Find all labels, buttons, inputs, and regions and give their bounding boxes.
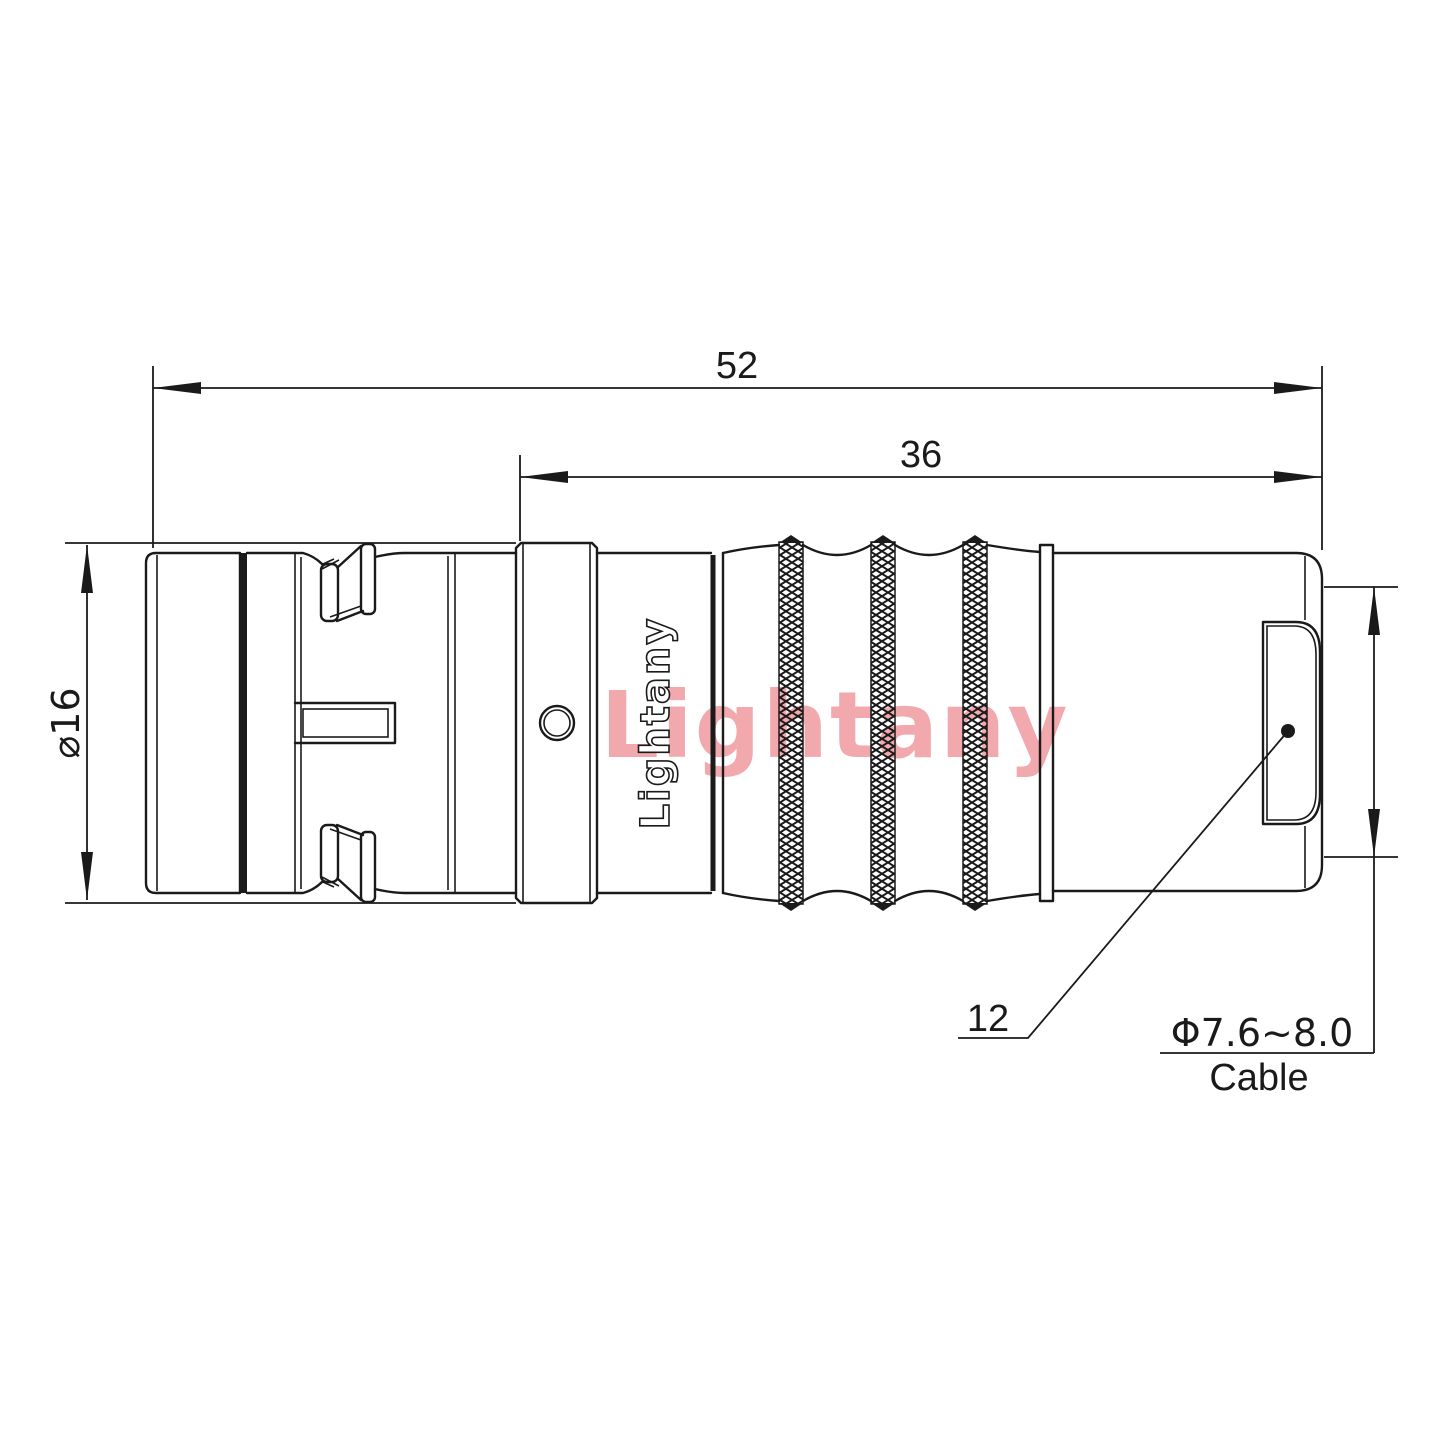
latch-bridge (295, 703, 395, 743)
dimension-cable-entry: Φ7.6~8.0 Cable (1160, 587, 1398, 1099)
shell-ring-band (240, 553, 247, 893)
technical-drawing: Lightany (0, 0, 1440, 1440)
dimension-rear-diameter-value: 12 (967, 998, 1009, 1040)
dimension-total-length: 52 (153, 345, 1322, 550)
logo-engraving-text: Lightany (633, 617, 679, 830)
dimension-front-length-value: 36 (900, 434, 942, 476)
cable-label: Cable (1209, 1057, 1308, 1099)
dimension-shell-diameter: ⌀16 (44, 543, 516, 903)
knurl-band-1 (779, 535, 803, 911)
drawing-canvas: Lightany (0, 0, 1440, 1440)
latch-tab-upper (321, 544, 375, 621)
dimension-front-length: 36 (520, 434, 1322, 541)
front-shell-cap (146, 553, 247, 893)
dimension-cable-range-value: Φ7.6~8.0 (1171, 1011, 1354, 1055)
knurl-band-3 (963, 535, 987, 911)
collar (516, 543, 597, 903)
latch-section (247, 544, 516, 902)
cable-entry-recess (1263, 622, 1320, 824)
rear-body (1053, 553, 1322, 891)
knurl-band-2 (871, 535, 895, 911)
latch-tab-lower (321, 825, 375, 902)
dimension-total-length-value: 52 (716, 345, 758, 387)
collar-hole (540, 706, 574, 740)
dimension-shell-diameter-value: ⌀16 (44, 687, 88, 758)
